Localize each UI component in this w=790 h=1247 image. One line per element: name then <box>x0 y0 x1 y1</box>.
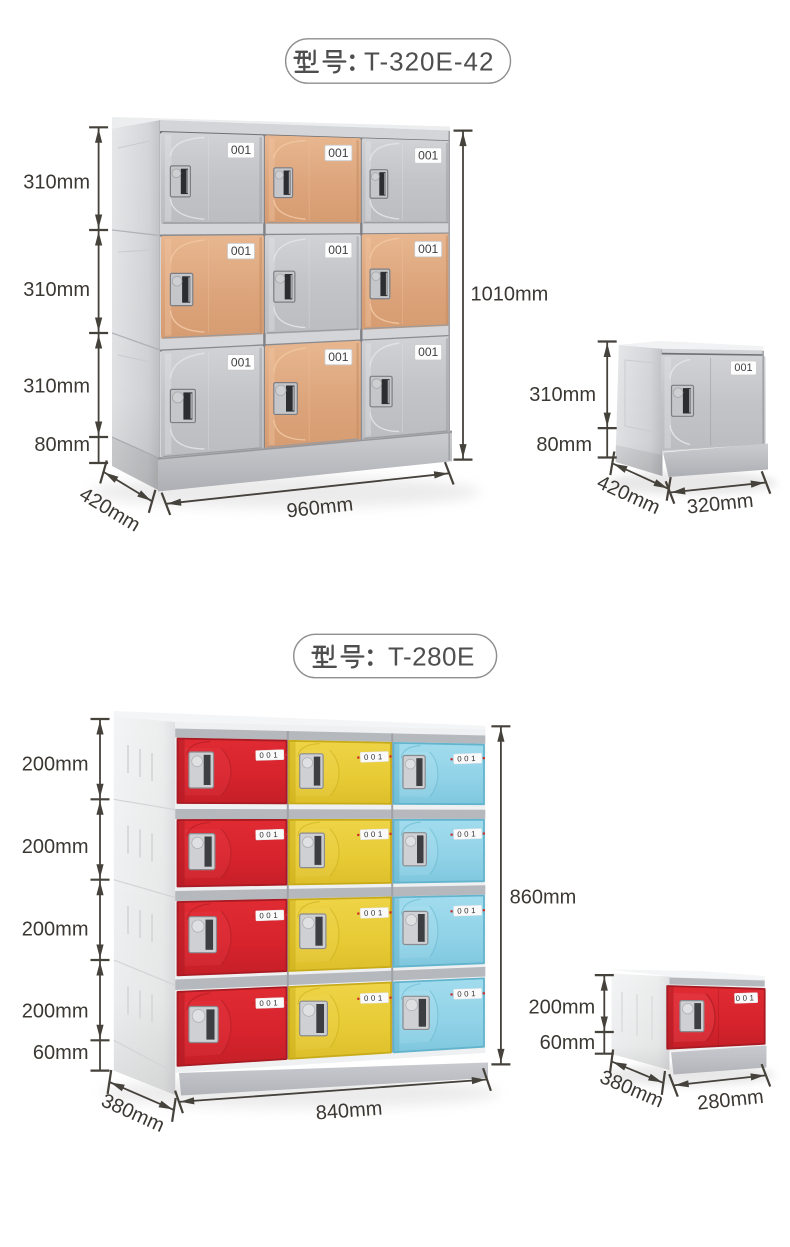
svg-text:T-320E-42: T-320E-42 <box>364 47 494 77</box>
svg-text:310mm: 310mm <box>23 376 90 398</box>
svg-text:310mm: 310mm <box>23 172 90 194</box>
svg-text:T-280E: T-280E <box>388 642 475 672</box>
svg-text:840mm: 840mm <box>315 1098 383 1125</box>
svg-text:80mm: 80mm <box>34 434 90 456</box>
svg-text:001: 001 <box>457 989 478 999</box>
svg-text:001: 001 <box>364 908 385 918</box>
svg-text:001: 001 <box>231 143 251 157</box>
svg-text:001: 001 <box>457 906 478 916</box>
svg-text:001: 001 <box>364 752 385 762</box>
svg-text:001: 001 <box>328 146 348 160</box>
svg-text:001: 001 <box>364 993 385 1003</box>
svg-text:001: 001 <box>328 243 348 257</box>
svg-text:001: 001 <box>259 911 280 921</box>
svg-text:200mm: 200mm <box>22 918 89 940</box>
svg-text:001: 001 <box>259 998 280 1008</box>
svg-text:200mm: 200mm <box>22 836 89 858</box>
svg-text:60mm: 60mm <box>540 1032 596 1054</box>
svg-text:60mm: 60mm <box>33 1042 89 1064</box>
svg-text:280mm: 280mm <box>696 1086 765 1115</box>
svg-text:80mm: 80mm <box>536 434 592 456</box>
svg-text:1010mm: 1010mm <box>471 284 549 306</box>
svg-text:200mm: 200mm <box>528 997 595 1019</box>
svg-text:001: 001 <box>231 355 251 369</box>
svg-text:001: 001 <box>736 993 757 1003</box>
svg-text:001: 001 <box>734 362 752 374</box>
svg-text:001: 001 <box>231 244 251 258</box>
svg-text:200mm: 200mm <box>22 1001 89 1023</box>
svg-text:001: 001 <box>418 345 438 359</box>
svg-text:001: 001 <box>364 830 385 840</box>
svg-text:310mm: 310mm <box>23 279 90 301</box>
svg-text:001: 001 <box>457 829 478 839</box>
svg-text:001: 001 <box>328 350 348 364</box>
svg-text:860mm: 860mm <box>510 886 577 908</box>
svg-text:001: 001 <box>418 149 438 163</box>
svg-text:200mm: 200mm <box>22 754 89 776</box>
svg-text:310mm: 310mm <box>529 384 596 406</box>
svg-text:001: 001 <box>259 830 280 840</box>
svg-text:001: 001 <box>418 242 438 256</box>
svg-text:001: 001 <box>457 754 478 764</box>
svg-text:001: 001 <box>259 750 280 760</box>
